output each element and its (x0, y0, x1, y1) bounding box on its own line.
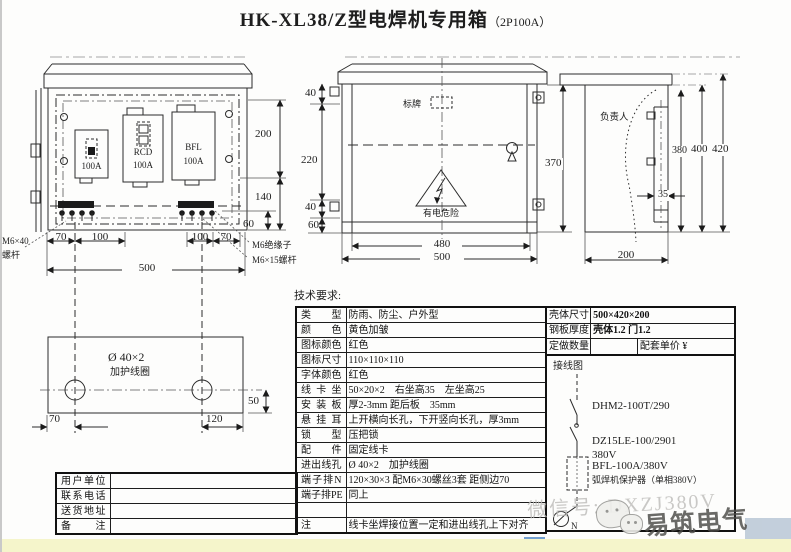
tech-value: 上开横向长孔，下开竖向长孔，厚3mm (346, 413, 546, 428)
dim-door-60: 60 (308, 220, 319, 232)
customer-value (110, 504, 297, 519)
device3-name: BFL (172, 143, 215, 152)
tech-value: 红色 (346, 368, 546, 383)
customer-label: 送货地址 (56, 504, 110, 519)
terminal-bolts (59, 210, 215, 221)
spec-table: 壳体尺寸 500×420×200 钢板厚度 壳体1.2 门1.2 定做数量 配套… (545, 306, 736, 356)
tech-value: 线卡坐焊接位置一定和进出线孔上下对齐 (346, 518, 546, 534)
tech-value: 110×110×110 (346, 353, 546, 368)
tech-value: 红色 (346, 338, 546, 353)
customer-label: 备注 (56, 519, 110, 535)
tech-label: 进出线孔 (296, 458, 346, 473)
dim-door-40-top: 40 (305, 88, 316, 100)
nameplate-label: 标牌 (403, 100, 421, 109)
spec-qty-blank (591, 339, 638, 355)
electric-danger-label: 有电危险 (418, 209, 464, 218)
dim-door-370: 370 (544, 158, 563, 170)
dim-coil-50: 50 (248, 396, 259, 408)
dim-front-100-left: 100 (78, 232, 122, 244)
device2-name: RCD (123, 148, 163, 157)
spec-price-cell: 配套单价 ¥ (637, 339, 735, 355)
title-main: HK-XL38/Z型电焊机专用箱 (240, 10, 488, 31)
wiring-protector-model: BFL-100A/380V (592, 461, 668, 473)
spec-value-steel: 壳体1.2 门1.2 (591, 323, 735, 339)
tech-value (346, 503, 546, 518)
tech-value: 厚2-3mm 距后板 35mm (346, 398, 546, 413)
wechat-icon (596, 500, 648, 542)
device1-rating: 100A (75, 162, 108, 171)
device3-rating: 100A (172, 157, 215, 166)
customer-value (110, 519, 297, 535)
tech-label: 注 (296, 518, 346, 534)
bottom-yellow-strip (0, 539, 791, 552)
tech-label: 字体颜色 (296, 368, 346, 383)
door-view-linework (308, 58, 572, 264)
wiring-switch-model: DHM2-100T/290 (592, 401, 670, 413)
tech-label: 类型 (296, 307, 346, 323)
tech-label: 端子排PE (296, 488, 346, 503)
side-view-linework (560, 74, 730, 264)
coil-diameter-label: Ø 40×2 (108, 351, 144, 364)
watermark-brand: 易筑电气 (643, 499, 749, 542)
scan-edge (0, 0, 2, 552)
tech-label: 配件 (296, 443, 346, 458)
customer-table: 用户单位 联系电话 送货地址 备注 (55, 472, 298, 535)
tech-label: 锁型 (296, 428, 346, 443)
spec-value-shell-size: 500×420×200 (591, 307, 735, 323)
dim-door-480: 480 (422, 239, 462, 251)
label-m6x40-bolt-2: 螺杆 (2, 251, 20, 260)
dim-front-height-60: 60 (243, 219, 254, 231)
wiring-neutral-label: N (571, 522, 578, 531)
wiring-protector-desc: 弧焊机保护器（单相380V） (592, 476, 702, 485)
tech-label: 线卡坐 (296, 383, 346, 398)
drawing-sheet: HK-XL38/Z型电焊机专用箱（2P100A） 类型防雨、防尘、户外型 颜色黄… (0, 0, 791, 552)
price-label: 配套单价 (640, 341, 680, 352)
label-m6x15-bolt: M6×15螺杆 (252, 256, 297, 265)
tech-value: 50×20×2 右坐高35 左坐高25 (346, 383, 546, 398)
label-m6-insulator: M6绝缘子 (252, 241, 292, 250)
device2-rating: 100A (123, 161, 163, 170)
dim-coil-70: 70 (49, 414, 60, 426)
tech-value: 120×30×3 配M6×30螺丝3套 距侧边70 (346, 473, 546, 488)
technical-requirements-table: 类型防雨、防尘、户外型 颜色黄色加皱 图标颜色红色 图标尺寸110×110×11… (295, 306, 547, 534)
tech-label: 颜色 (296, 323, 346, 338)
tech-label: 悬挂耳 (296, 413, 346, 428)
dim-door-220: 220 (301, 155, 318, 167)
tech-requirements-heading: 技术要求: (294, 291, 341, 303)
label-m6x40-bolt: M6×40 (2, 237, 29, 246)
dim-coil-120: 120 (206, 414, 223, 426)
dim-front-height-200: 200 (255, 129, 272, 141)
tech-value: 固定线卡 (346, 443, 546, 458)
front-view-linework (25, 64, 286, 433)
dim-side-200: 200 (611, 250, 641, 262)
dim-door-40-bottom: 40 (305, 202, 316, 214)
tech-value: 压把锁 (346, 428, 546, 443)
customer-value (110, 473, 297, 489)
dim-side-400: 400 (690, 144, 709, 156)
dim-front-height-140: 140 (255, 192, 272, 204)
person-in-charge-label: 负责人 (600, 114, 629, 124)
customer-label: 联系电话 (56, 489, 110, 504)
page-title: HK-XL38/Z型电焊机专用箱（2P100A） (0, 5, 791, 32)
wiring-breaker-model: DZ15LE-100/2901 (592, 436, 676, 448)
dim-door-500: 500 (420, 252, 464, 264)
tech-label (296, 503, 346, 518)
dim-side-35: 35 (657, 190, 669, 201)
tech-label: 图标颜色 (296, 338, 346, 353)
dim-side-380: 380 (671, 146, 688, 157)
tech-value: 黄色加皱 (346, 323, 546, 338)
dim-front-width-500: 500 (122, 263, 172, 275)
dim-side-420: 420 (711, 144, 730, 156)
spec-label: 壳体尺寸 (546, 307, 591, 323)
dim-front-70-right: 70 (212, 232, 240, 244)
customer-value (110, 489, 297, 504)
tech-label: 安装板 (296, 398, 346, 413)
dim-front-70-left: 70 (47, 232, 75, 244)
tech-label: 端子排N (296, 473, 346, 488)
spec-label: 钢板厚度 (546, 323, 591, 339)
wiring-diagram-title: 接线图 (553, 357, 583, 372)
coil-view-linework (32, 337, 272, 432)
tech-value: 防雨、防尘、户外型 (346, 307, 546, 323)
protective-coil-label: 加护线圈 (110, 368, 150, 379)
tech-label: 图标尺寸 (296, 353, 346, 368)
customer-label: 用户单位 (56, 473, 110, 489)
tech-value: 同上 (346, 488, 546, 503)
title-suffix: （2P100A） (488, 15, 551, 29)
spec-label: 定做数量 (546, 339, 591, 355)
tech-value: Ø 40×2 加护线圈 (346, 458, 546, 473)
price-currency: ¥ (682, 341, 687, 352)
